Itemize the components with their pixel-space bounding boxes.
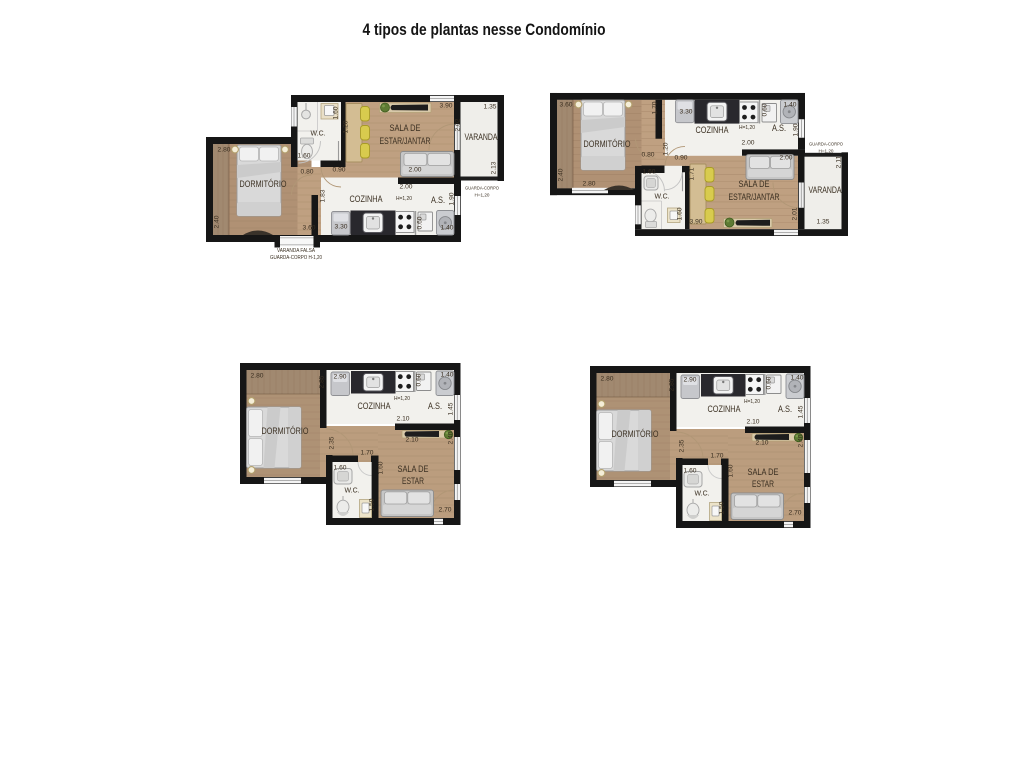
svg-text:W.C.: W.C.: [345, 486, 360, 495]
svg-text:COZINHA: COZINHA: [708, 404, 741, 414]
svg-text:2.10: 2.10: [406, 437, 419, 444]
svg-text:0.60: 0.60: [417, 216, 424, 229]
svg-text:0.60: 0.60: [766, 376, 773, 389]
svg-text:1.35: 1.35: [484, 104, 497, 111]
svg-text:1.50: 1.50: [719, 501, 726, 514]
svg-text:W.C.: W.C.: [311, 129, 326, 138]
svg-text:VARANDA: VARANDA: [465, 132, 498, 142]
svg-text:0.60: 0.60: [762, 103, 769, 116]
svg-text:1.40: 1.40: [791, 375, 804, 382]
svg-text:H=1,20: H=1,20: [744, 399, 760, 405]
svg-text:COZINHA: COZINHA: [696, 125, 729, 135]
svg-text:1.45: 1.45: [448, 402, 455, 415]
svg-text:1.70: 1.70: [652, 101, 659, 114]
svg-text:2.70: 2.70: [439, 507, 452, 514]
svg-text:H=1,20: H=1,20: [394, 396, 410, 402]
svg-text:2.90: 2.90: [684, 377, 697, 384]
svg-text:2.00: 2.00: [409, 167, 422, 174]
svg-text:3.90: 3.90: [440, 103, 453, 110]
svg-text:W.C.: W.C.: [695, 489, 710, 498]
svg-text:2.40: 2.40: [558, 168, 565, 181]
svg-text:2.40: 2.40: [214, 215, 221, 228]
svg-text:GUARDA-CORPO: GUARDA-CORPO: [465, 186, 499, 191]
svg-text:VARANDA FALSA: VARANDA FALSA: [277, 248, 316, 254]
svg-text:DORMITÓRIO: DORMITÓRIO: [584, 139, 631, 149]
svg-text:1.70: 1.70: [711, 453, 724, 460]
svg-text:DORMITÓRIO: DORMITÓRIO: [240, 179, 287, 189]
svg-text:A.S.: A.S.: [431, 195, 445, 205]
svg-text:1.83: 1.83: [320, 189, 327, 202]
svg-text:2.70: 2.70: [789, 510, 802, 517]
svg-text:2.90: 2.90: [334, 374, 347, 381]
svg-text:0.90: 0.90: [333, 167, 346, 174]
svg-text:2.80: 2.80: [218, 147, 231, 154]
svg-text:1.90: 1.90: [449, 192, 456, 205]
svg-text:1.60: 1.60: [378, 461, 385, 474]
svg-text:3.60: 3.60: [560, 102, 573, 109]
svg-text:H=1,20: H=1,20: [396, 196, 412, 202]
svg-text:A.S.: A.S.: [772, 123, 786, 133]
svg-text:3.30: 3.30: [680, 109, 693, 116]
svg-text:0.80: 0.80: [642, 152, 655, 159]
svg-text:2.00: 2.00: [742, 140, 755, 147]
svg-text:1.45: 1.45: [798, 405, 805, 418]
svg-text:1.40: 1.40: [784, 102, 797, 109]
svg-text:1.50: 1.50: [369, 498, 376, 511]
svg-text:1.20: 1.20: [343, 120, 350, 133]
svg-text:1.35: 1.35: [817, 219, 830, 226]
svg-text:0.80: 0.80: [301, 169, 314, 176]
svg-text:2.35: 2.35: [679, 439, 686, 452]
svg-text:2.11: 2.11: [836, 155, 843, 168]
svg-text:2.40: 2.40: [798, 434, 805, 447]
svg-text:DORMITÓRIO: DORMITÓRIO: [612, 429, 659, 439]
svg-text:1.40: 1.40: [441, 225, 454, 232]
svg-text:SALA DE: SALA DE: [748, 467, 779, 477]
svg-text:2.10: 2.10: [747, 419, 760, 426]
svg-text:2.00: 2.00: [400, 184, 413, 191]
svg-text:VARANDA: VARANDA: [809, 185, 842, 195]
svg-text:ESTAR: ESTAR: [752, 479, 774, 489]
svg-text:SALA DE: SALA DE: [398, 464, 429, 474]
svg-text:2.40: 2.40: [448, 431, 455, 444]
svg-text:1.60: 1.60: [643, 169, 656, 176]
svg-text:1.60: 1.60: [728, 464, 735, 477]
svg-text:2.85: 2.85: [319, 375, 326, 388]
svg-text:GUARDA-CORPO: GUARDA-CORPO: [809, 142, 843, 147]
svg-text:1.90: 1.90: [793, 123, 800, 136]
svg-text:COZINHA: COZINHA: [350, 194, 383, 204]
svg-text:ESTAR: ESTAR: [402, 476, 424, 486]
svg-text:1.60: 1.60: [677, 207, 684, 220]
svg-text:4 tipos de plantas nesse Condo: 4 tipos de plantas nesse Condomínio: [363, 21, 606, 39]
svg-text:A.S.: A.S.: [428, 401, 442, 411]
svg-text:H=1,20: H=1,20: [739, 125, 755, 131]
svg-text:COZINHA: COZINHA: [358, 401, 391, 411]
svg-text:2.80: 2.80: [601, 376, 614, 383]
svg-text:2.85: 2.85: [669, 378, 676, 391]
svg-text:H=1,20: H=1,20: [475, 193, 490, 198]
svg-text:3.30: 3.30: [335, 224, 348, 231]
svg-text:2.13: 2.13: [491, 161, 498, 174]
svg-text:2.35: 2.35: [329, 436, 336, 449]
svg-text:1.20: 1.20: [663, 142, 670, 155]
svg-text:DORMITÓRIO: DORMITÓRIO: [262, 426, 309, 436]
svg-text:2.01: 2.01: [792, 207, 799, 220]
svg-text:2.80: 2.80: [583, 181, 596, 188]
svg-text:2.80: 2.80: [251, 373, 264, 380]
svg-text:1.40: 1.40: [441, 372, 454, 379]
svg-text:2.10: 2.10: [397, 416, 410, 423]
svg-text:1.60: 1.60: [334, 465, 347, 472]
svg-text:ESTAR/JANTAR: ESTAR/JANTAR: [729, 192, 780, 202]
svg-text:1.60: 1.60: [298, 153, 311, 160]
svg-text:SALA DE: SALA DE: [390, 123, 421, 133]
svg-text:3.60: 3.60: [303, 225, 316, 232]
svg-text:GUARDA-CORPO H-1,20: GUARDA-CORPO H-1,20: [270, 255, 322, 261]
svg-text:W.C.: W.C.: [655, 192, 670, 201]
svg-text:3.90: 3.90: [690, 219, 703, 226]
svg-text:A.S.: A.S.: [778, 404, 792, 414]
svg-text:1.60: 1.60: [333, 106, 340, 119]
svg-text:1.60: 1.60: [684, 468, 697, 475]
svg-text:1.71: 1.71: [689, 167, 696, 180]
svg-text:SALA DE: SALA DE: [739, 179, 770, 189]
svg-text:0.60: 0.60: [416, 373, 423, 386]
svg-text:ESTAR/JANTAR: ESTAR/JANTAR: [380, 136, 431, 146]
svg-text:2.10: 2.10: [756, 440, 769, 447]
svg-text:2.02: 2.02: [455, 118, 462, 131]
svg-text:H=1,20: H=1,20: [819, 149, 834, 154]
svg-text:2.00: 2.00: [780, 155, 793, 162]
svg-text:1.70: 1.70: [361, 450, 374, 457]
svg-text:0.90: 0.90: [675, 155, 688, 162]
